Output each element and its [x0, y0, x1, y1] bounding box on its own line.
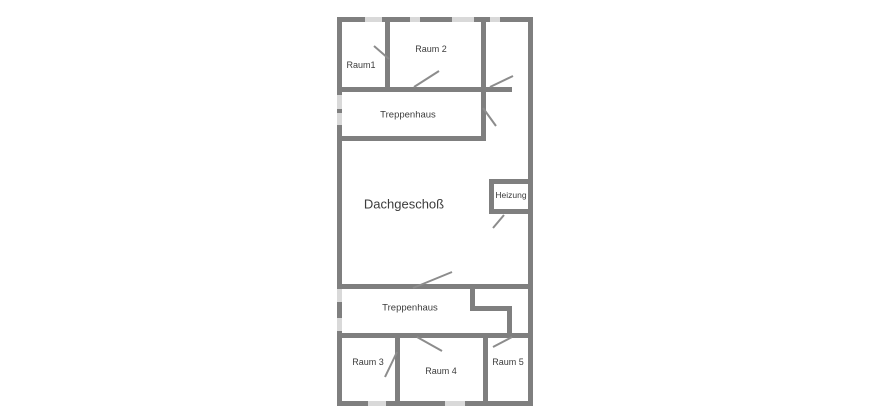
- door-swing-door-top-right-room: [490, 76, 513, 87]
- room-label-dachgeschoss: Dachgeschoß: [364, 197, 444, 212]
- watermark-wm-top-2: [410, 17, 420, 22]
- room-label-treppenhaus-bottom: Treppenhaus: [382, 303, 438, 314]
- room-label-raum5: Raum 5: [492, 357, 524, 367]
- wall-treppenhaus-bottom: [342, 136, 481, 141]
- wall-outer-left: [337, 17, 342, 406]
- watermark-wm-top-1: [365, 17, 382, 22]
- wall-heizung-bottom: [489, 209, 528, 214]
- door-swing-door-heizung: [493, 215, 504, 228]
- wall-notch-horizontal: [470, 306, 512, 311]
- wall-outer-right: [528, 17, 533, 406]
- wall-heizung-left: [489, 184, 494, 209]
- room-label-heizung: Heizung: [495, 190, 526, 200]
- wall-corridor-left-wall: [481, 22, 486, 141]
- floorplan-dachgeschoss: Raum1Raum 2TreppenhausDachgeschoßHeizung…: [337, 17, 533, 406]
- watermark-wm-top-3: [452, 17, 474, 22]
- door-swing-door-raum4: [417, 337, 442, 351]
- watermark-wm-left-2: [337, 113, 342, 125]
- page-background: Raum1Raum 2TreppenhausDachgeschoßHeizung…: [0, 0, 870, 420]
- wall-outer-bottom: [337, 401, 533, 406]
- door-swing-door-raum2: [414, 71, 439, 87]
- room-label-treppenhaus-top: Treppenhaus: [380, 110, 436, 121]
- wall-raum3-raum4-divider: [395, 338, 400, 401]
- wall-raum1-raum2-divider: [385, 22, 390, 87]
- wall-below-top-right-room: [486, 87, 512, 92]
- wall-rooms-top-wall: [342, 333, 528, 338]
- wall-raum4-raum5-divider: [483, 338, 488, 401]
- wall-main-cross-wall: [342, 284, 528, 289]
- door-swing-door-raum5: [493, 337, 512, 347]
- wall-notch-right-stub: [507, 311, 512, 336]
- watermark-wm-bottom-1: [368, 401, 386, 406]
- watermark-wm-bottom-2: [445, 401, 465, 406]
- room-label-raum4: Raum 4: [425, 366, 457, 376]
- watermark-wm-left-3: [337, 289, 342, 302]
- room-label-raum3: Raum 3: [352, 357, 384, 367]
- wall-below-raum1-raum2: [342, 87, 481, 92]
- room-label-raum2: Raum 2: [415, 44, 447, 54]
- wall-heizung-top: [489, 179, 528, 184]
- watermark-wm-top-4: [490, 17, 500, 22]
- room-label-raum1: Raum1: [346, 60, 375, 70]
- watermark-wm-left-4: [337, 318, 342, 331]
- watermark-wm-left-1: [337, 95, 342, 109]
